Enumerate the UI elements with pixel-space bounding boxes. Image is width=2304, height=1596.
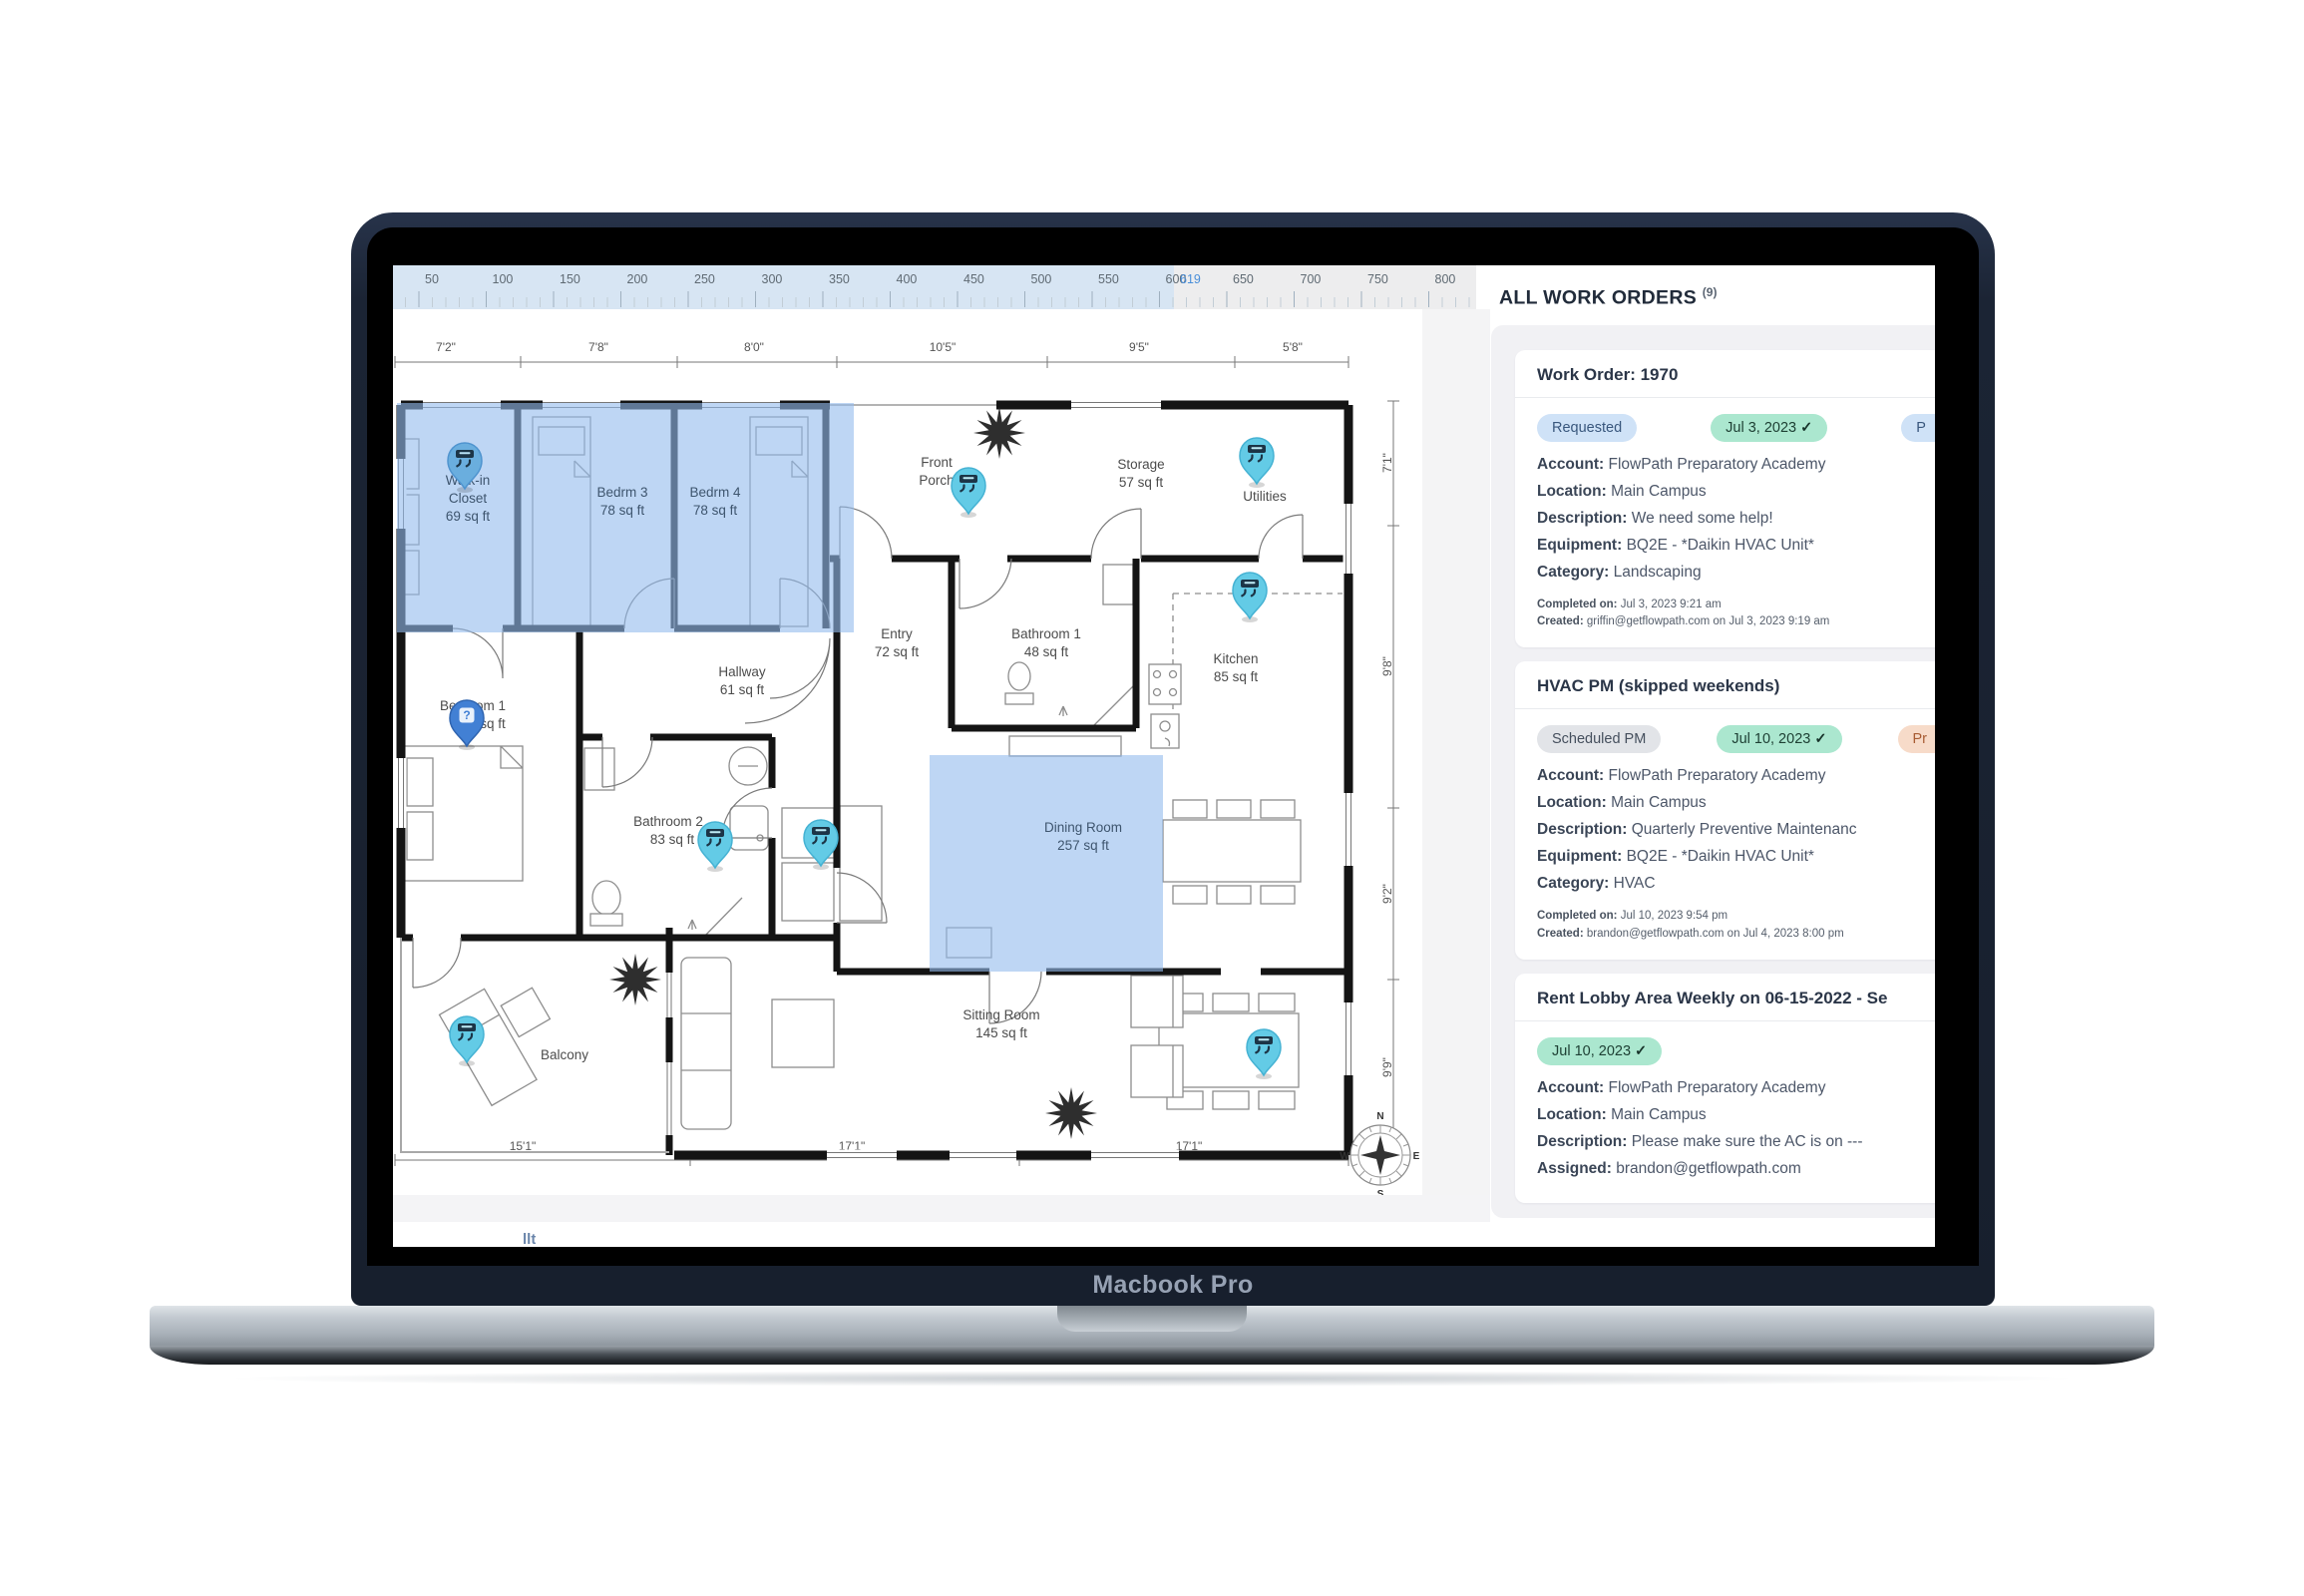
svg-text:300: 300 (762, 272, 783, 286)
svg-text:Bathroom 2: Bathroom 2 (633, 814, 703, 829)
svg-text:9'9": 9'9" (1380, 1057, 1394, 1077)
clipped-text-fragment: llt (523, 1231, 536, 1247)
svg-text:250: 250 (694, 272, 715, 286)
svg-text:50: 50 (425, 272, 439, 286)
svg-text:48 sq ft: 48 sq ft (1024, 644, 1069, 659)
svg-text:S: S (1377, 1189, 1384, 1195)
svg-text:7'8": 7'8" (588, 340, 608, 354)
svg-text:Entry: Entry (881, 626, 913, 641)
svg-text:200: 200 (627, 272, 648, 286)
svg-text:Dining Room: Dining Room (1044, 820, 1122, 835)
svg-text:15'1": 15'1" (510, 1139, 537, 1153)
clipped-badge: Pr (1898, 725, 1935, 753)
work-order-card[interactable]: HVAC PM (skipped weekends) Scheduled PM … (1515, 661, 1935, 960)
ruler-cursor-value: 619 (1180, 272, 1201, 286)
svg-text:61 sq ft: 61 sq ft (720, 682, 765, 697)
svg-text:N: N (1376, 1111, 1383, 1122)
laptop-shadow (219, 1371, 2085, 1387)
field-equipment: Equipment: BQ2E - *Daikin HVAC Unit* (1537, 848, 1935, 866)
work-orders-panel: ALL WORK ORDERS (9) Work Order: 1970 Req… (1490, 265, 1935, 1247)
laptop-display: 5010015020025030035040045050055060065070… (367, 227, 1979, 1266)
svg-text:Sitting Room: Sitting Room (962, 1007, 1039, 1022)
svg-text:800: 800 (1435, 272, 1456, 286)
canvas-bottom-strip (393, 1195, 1490, 1222)
card-footer: Completed on: Jul 3, 2023 9:21 am Create… (1537, 597, 1935, 632)
svg-text:72 sq ft: 72 sq ft (875, 644, 920, 659)
field-category: Category: Landscaping (1537, 564, 1935, 582)
svg-text:W: W (1340, 1151, 1349, 1162)
work-order-title: Work Order: 1970 (1515, 350, 1935, 397)
svg-text:550: 550 (1098, 272, 1119, 286)
svg-text:E: E (1413, 1151, 1420, 1162)
svg-text:Bedrm 4: Bedrm 4 (689, 485, 741, 500)
svg-text:69 sq ft: 69 sq ft (446, 509, 491, 524)
svg-text:Porch: Porch (919, 473, 954, 488)
field-location: Location: Main Campus (1537, 483, 1935, 501)
svg-text:9'2": 9'2" (1380, 884, 1394, 904)
laptop-brand-label: Macbook Pro (351, 1271, 1995, 1300)
svg-text:8'0": 8'0" (744, 340, 764, 354)
work-orders-count: (9) (1703, 285, 1718, 299)
svg-text:10'5": 10'5" (930, 340, 957, 354)
field-location: Location: Main Campus (1537, 794, 1935, 812)
field-equipment: Equipment: BQ2E - *Daikin HVAC Unit* (1537, 537, 1935, 555)
svg-text:Closet: Closet (449, 491, 488, 506)
field-account: Account: FlowPath Preparatory Academy (1537, 1079, 1935, 1097)
laptop-base (150, 1306, 2154, 1346)
field-description: Description: Quarterly Preventive Mainte… (1537, 821, 1935, 839)
work-order-title: HVAC PM (skipped weekends) (1515, 661, 1935, 708)
svg-text:7'1": 7'1" (1380, 453, 1394, 473)
ruler-plain-range (1174, 265, 1476, 309)
svg-text:500: 500 (1031, 272, 1052, 286)
check-icon: ✓ (1814, 731, 1826, 747)
highlight-dining-room[interactable] (930, 755, 1163, 972)
svg-text:Utilities: Utilities (1243, 489, 1287, 504)
svg-text:7'2": 7'2" (436, 340, 456, 354)
svg-text:Front: Front (921, 455, 953, 470)
svg-text:350: 350 (829, 272, 850, 286)
work-order-card[interactable]: Rent Lobby Area Weekly on 06-15-2022 - S… (1515, 974, 1935, 1203)
svg-text:145 sq ft: 145 sq ft (975, 1025, 1027, 1040)
field-description: Description: We need some help! (1537, 510, 1935, 528)
check-icon: ✓ (1800, 420, 1812, 436)
check-icon: ✓ (1635, 1043, 1647, 1059)
field-account: Account: FlowPath Preparatory Academy (1537, 767, 1935, 785)
field-category: Category: HVAC (1537, 875, 1935, 893)
field-location: Location: Main Campus (1537, 1106, 1935, 1124)
svg-text:150: 150 (560, 272, 580, 286)
svg-text:Balcony: Balcony (541, 1047, 588, 1062)
laptop-screen-bezel: 5010015020025030035040045050055060065070… (351, 212, 1995, 1306)
laptop-base-notch (1057, 1306, 1247, 1332)
svg-text:57 sq ft: 57 sq ft (1119, 475, 1164, 490)
svg-text:100: 100 (493, 272, 514, 286)
svg-text:Kitchen: Kitchen (1213, 651, 1258, 666)
horizontal-ruler: 5010015020025030035040045050055060065070… (393, 265, 1476, 309)
field-account: Account: FlowPath Preparatory Academy (1537, 456, 1935, 474)
card-footer: Completed on: Jul 10, 2023 9:54 pm Creat… (1537, 908, 1935, 944)
svg-text:9'8": 9'8" (1380, 656, 1394, 676)
status-badge: Requested (1537, 414, 1637, 442)
svg-text:Hallway: Hallway (718, 664, 766, 679)
svg-text:Bedrm 3: Bedrm 3 (596, 485, 647, 500)
date-badge: Jul 10, 2023 ✓ (1717, 725, 1841, 753)
plan-paper-margin (1422, 309, 1476, 1195)
floor-plan-canvas[interactable]: ? 7'2" 7'8" 8'0" 10'5" 9'5" (393, 309, 1476, 1195)
svg-text:9'5": 9'5" (1129, 340, 1149, 354)
clipped-badge: P (1901, 414, 1935, 442)
svg-text:Storage: Storage (1117, 457, 1164, 472)
svg-text:85 sq ft: 85 sq ft (1214, 669, 1259, 684)
svg-text:Bathroom 1: Bathroom 1 (1011, 626, 1081, 641)
svg-text:650: 650 (1233, 272, 1254, 286)
svg-text:400: 400 (897, 272, 918, 286)
svg-text:450: 450 (963, 272, 984, 286)
date-badge: Jul 10, 2023 ✓ (1537, 1037, 1662, 1065)
status-badge: Scheduled PM (1537, 725, 1661, 753)
work-order-card[interactable]: Work Order: 1970 Requested Jul 3, 2023 ✓… (1515, 350, 1935, 648)
field-assigned: Assigned: brandon@getflowpath.com (1537, 1160, 1935, 1178)
panel-title: ALL WORK ORDERS (9) (1499, 285, 1935, 310)
svg-text:78 sq ft: 78 sq ft (693, 503, 738, 518)
date-badge: Jul 3, 2023 ✓ (1711, 414, 1827, 442)
svg-text:750: 750 (1367, 272, 1388, 286)
laptop-base-edge (150, 1346, 2154, 1365)
svg-text:78 sq ft: 78 sq ft (600, 503, 645, 518)
svg-text:257 sq ft: 257 sq ft (1057, 838, 1109, 853)
field-description: Description: Please make sure the AC is … (1537, 1133, 1935, 1151)
svg-text:83 sq ft: 83 sq ft (650, 832, 695, 847)
work-order-title: Rent Lobby Area Weekly on 06-15-2022 - S… (1515, 974, 1935, 1020)
page: 5010015020025030035040045050055060065070… (0, 0, 2304, 1596)
work-orders-list[interactable]: Work Order: 1970 Requested Jul 3, 2023 ✓… (1491, 325, 1935, 1218)
floor-plan-app: 5010015020025030035040045050055060065070… (393, 265, 1935, 1247)
svg-text:5'8": 5'8" (1283, 340, 1303, 354)
svg-text:700: 700 (1301, 272, 1322, 286)
